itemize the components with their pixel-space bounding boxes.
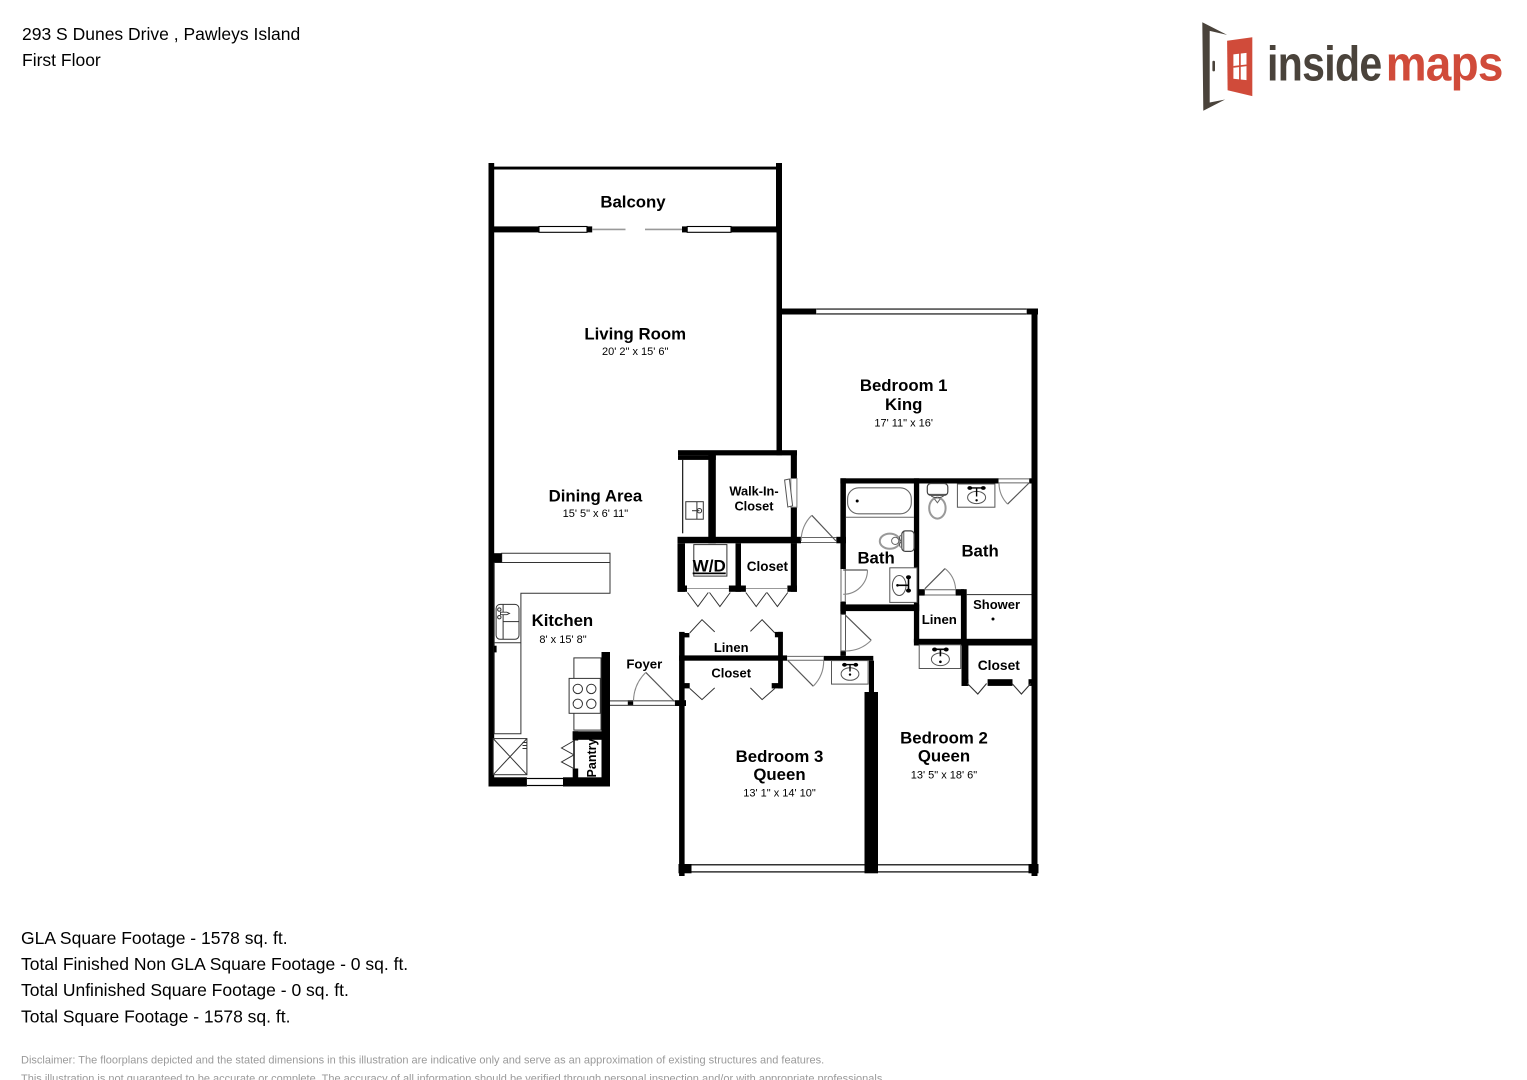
svg-text:Bath: Bath [961,542,998,561]
svg-text:inside: inside [1267,37,1382,92]
svg-text:Bath: Bath [857,549,894,568]
svg-text:W/D: W/D [693,557,726,576]
svg-text:King: King [885,395,922,414]
svg-text:17' 11" x 16': 17' 11" x 16' [874,418,933,430]
svg-text:Foyer: Foyer [626,656,662,671]
svg-text:Dining Area: Dining Area [549,487,643,506]
svg-text:Shower: Shower [973,597,1020,612]
svg-text:maps: maps [1386,37,1503,92]
svg-text:Kitchen: Kitchen [532,611,594,630]
svg-text:Linen: Linen [922,612,957,627]
svg-text:Total Unfinished Square Footag: Total Unfinished Square Footage - 0 sq. … [21,980,349,1000]
svg-text:GLA Square Footage - 1578 sq.: GLA Square Footage - 1578 sq. ft. [21,928,288,948]
svg-text:293 S Dunes Drive , Pawleys Is: 293 S Dunes Drive , Pawleys Island [22,24,300,44]
svg-text:Living Room: Living Room [584,324,686,343]
svg-text:First Floor: First Floor [22,50,101,70]
svg-text:Bedroom 1: Bedroom 1 [860,376,948,395]
svg-text:Walk-In-: Walk-In- [729,484,778,499]
svg-text:Balcony: Balcony [600,193,666,212]
svg-text:Queen: Queen [753,765,805,784]
svg-text:13' 5" x 18' 6": 13' 5" x 18' 6" [911,769,978,781]
svg-text:Linen: Linen [714,640,749,655]
svg-text:Total Square Footage - 1578 sq: Total Square Footage - 1578 sq. ft. [21,1007,290,1027]
svg-text:Bedroom 3: Bedroom 3 [736,747,824,766]
svg-text:This illustration is not guara: This illustration is not guaranteed to b… [21,1073,885,1080]
svg-text:Closet: Closet [711,666,751,681]
svg-text:20' 2" x 15' 6": 20' 2" x 15' 6" [602,346,669,358]
svg-text:Total Finished Non GLA Square: Total Finished Non GLA Square Footage - … [21,954,408,974]
svg-text:Closet: Closet [747,559,789,574]
svg-text:Closet: Closet [978,658,1021,673]
svg-text:8' x 15' 8": 8' x 15' 8" [539,634,586,646]
svg-text:15' 5" x 6' 11": 15' 5" x 6' 11" [563,508,629,520]
svg-text:Queen: Queen [918,747,970,766]
svg-text:Closet: Closet [734,498,774,513]
svg-text:Bedroom 2: Bedroom 2 [900,729,988,748]
svg-text:Pantry: Pantry [585,739,599,778]
svg-text:13' 1" x 14' 10": 13' 1" x 14' 10" [743,788,816,800]
svg-text:Disclaimer: The floorplans dep: Disclaimer: The floorplans depicted and … [21,1055,824,1067]
